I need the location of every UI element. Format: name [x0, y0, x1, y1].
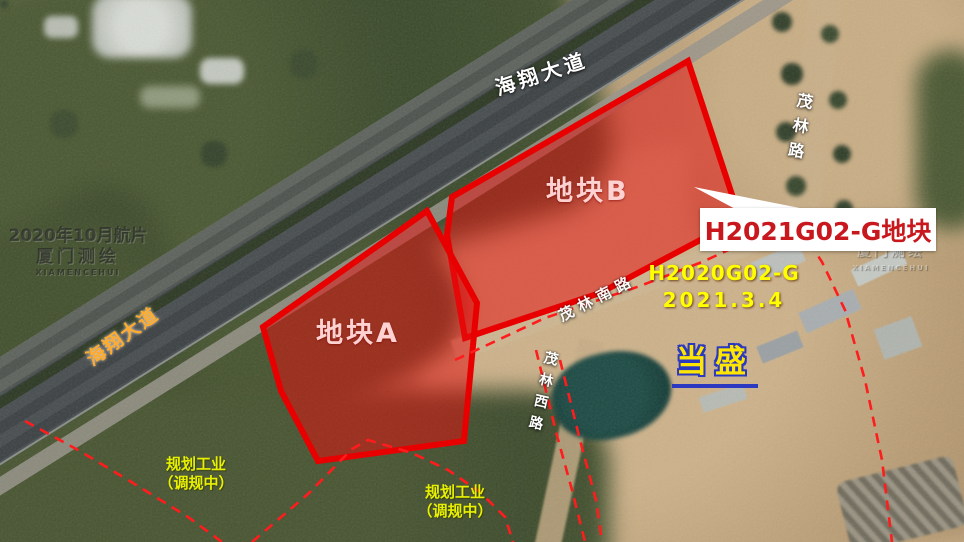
- planning-label-1: 规划工业 （调规中）: [144, 455, 248, 493]
- planning-label-line1: 规划工业: [144, 455, 248, 474]
- parcel-callout-text: H2021G02-G地块: [705, 212, 932, 248]
- parcel-callout: H2021G02-G地块: [700, 208, 936, 251]
- watermark-left: 2020年10月航片 厦门测绘 XIAMENCEHUI: [2, 226, 154, 278]
- watermark-agency: 厦门测绘: [2, 247, 154, 268]
- company-label: 当盛: [672, 336, 758, 388]
- aerial-map: 2020年10月航片 厦门测绘 XIAMENCEHUI 厦门测绘 XIAMENC…: [0, 0, 964, 542]
- planning-label-line2: （调规中）: [144, 474, 248, 493]
- yellow-note-date: 2021.3.4: [648, 287, 800, 314]
- yellow-note: H2020G02-G 2021.3.4: [648, 260, 800, 314]
- parcel-b-label: 地块B: [546, 169, 630, 208]
- planning-label-2: 规划工业 （调规中）: [403, 483, 507, 521]
- yellow-note-parcel-code: H2020G02-G: [648, 260, 800, 287]
- planning-label-line1: 规划工业: [403, 483, 507, 502]
- parcel-a-label: 地块A: [316, 311, 400, 350]
- watermark-agency-latin: XIAMENCEHUI: [2, 268, 154, 278]
- planning-label-line2: （调规中）: [403, 502, 507, 521]
- watermark-agency-latin: XIAMENCEHUI: [818, 260, 964, 276]
- watermark-date: 2020年10月航片: [2, 226, 154, 247]
- planning-boundary-maolin-west-right: [560, 360, 602, 542]
